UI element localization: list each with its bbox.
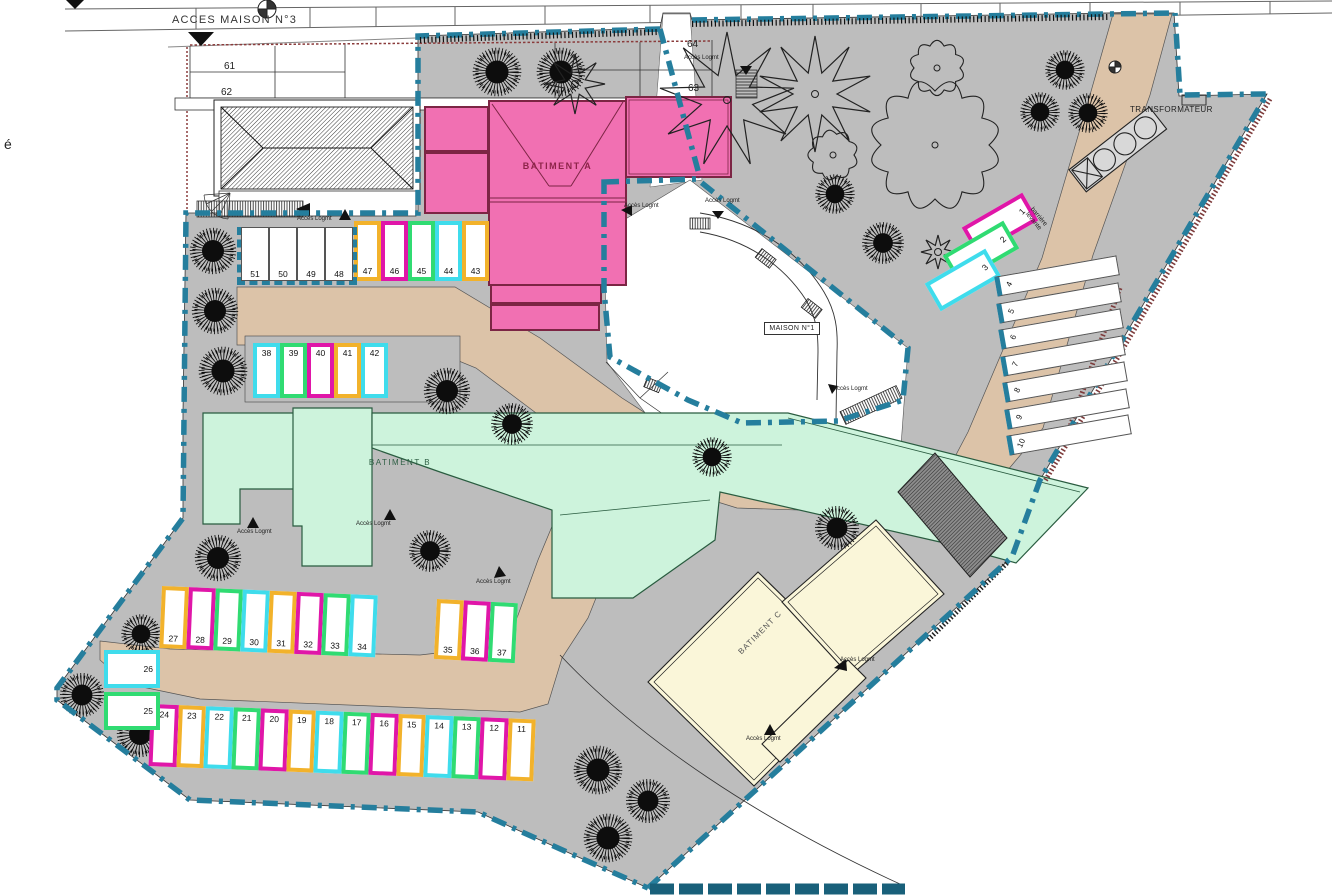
acces-logmt-label: Accès Logmt <box>840 657 875 663</box>
transformateur-label: TRANSFORMATEUR <box>1130 105 1213 114</box>
margin-letter: é <box>4 136 12 152</box>
acces-logmt-label: Accès Logmt <box>705 198 740 204</box>
parking-space-number: 4 <box>1002 276 1017 293</box>
parking-space-20: 20 <box>258 708 288 771</box>
parking-space-number: 19 <box>292 715 312 726</box>
parking-space-29: 29 <box>213 588 243 651</box>
parking-space-number: 38 <box>257 348 276 358</box>
parking-space-48: 48 <box>325 227 353 281</box>
acces-logmt-label: Accès Logmt <box>833 386 868 392</box>
parking-space-46: 46 <box>381 221 408 281</box>
parking-space-number: 11 <box>512 724 532 735</box>
parking-space-number: 3 <box>980 262 990 272</box>
parking-space-50: 50 <box>269 227 297 281</box>
batiment-b-label: BATIMENT B <box>330 458 470 467</box>
parking-space-number: 50 <box>270 269 296 279</box>
parking-space-number: 9 <box>1012 408 1027 425</box>
parking-space-number: 20 <box>264 714 284 725</box>
parking-space-number: 17 <box>347 717 367 728</box>
parking-space-21: 21 <box>231 707 261 770</box>
acces-logmt-label: Accès Logmt <box>624 203 659 209</box>
parking-space-26: 26 <box>104 650 160 688</box>
parking-space-45: 45 <box>408 221 435 281</box>
parking-space-number: 12 <box>484 722 504 733</box>
parking-space-22: 22 <box>203 706 233 769</box>
parking-space-43: 43 <box>462 221 489 281</box>
parking-space-number: 30 <box>244 637 263 648</box>
parking-space-number: 43 <box>466 266 485 276</box>
acces-logmt-label: Accès Logmt <box>476 579 511 585</box>
parking-space-30: 30 <box>240 590 270 653</box>
parking-space-14: 14 <box>423 715 453 778</box>
existing-building <box>197 100 420 219</box>
parking-row-27-34: 2728293031323334 <box>159 586 377 657</box>
parking-space-18: 18 <box>313 711 343 774</box>
parking-space-number: 15 <box>402 719 422 730</box>
parking-space-number: 34 <box>352 641 371 652</box>
parking-space-number: 51 <box>242 269 268 279</box>
plot-number-61: 61 <box>224 61 235 72</box>
parking-space-number: 22 <box>209 711 229 722</box>
parking-space-31: 31 <box>267 591 297 654</box>
parking-space-number: 27 <box>164 633 183 644</box>
parking-space-number: 10 <box>1014 435 1029 452</box>
parking-space-number: 14 <box>429 720 449 731</box>
acces-logmt-label: Accès Logmt <box>297 216 332 222</box>
plot-number-63: 63 <box>688 83 699 94</box>
parking-space-44: 44 <box>435 221 462 281</box>
parking-space-number: 42 <box>365 348 384 358</box>
parking-space-number: 29 <box>217 635 236 646</box>
parking-space-11: 11 <box>506 718 536 781</box>
parking-space-number: 37 <box>492 647 511 658</box>
parking-space-42: 42 <box>361 343 388 398</box>
parking-space-number: 39 <box>284 348 303 358</box>
parking-row-43-47: 4746454443 <box>354 221 489 281</box>
parking-space-51: 51 <box>241 227 269 281</box>
batiment-a-label: BATIMENT A <box>489 161 626 171</box>
acces-logmt-label: Accès Logmt <box>746 736 781 742</box>
parking-space-41: 41 <box>334 343 361 398</box>
parking-space-number: 46 <box>385 266 404 276</box>
acces-logmt-label: Accès Logmt <box>684 55 719 61</box>
parking-space-number: 32 <box>298 639 317 650</box>
parking-space-34: 34 <box>348 594 378 657</box>
parking-space-27: 27 <box>159 586 189 649</box>
parking-space-number: 41 <box>338 348 357 358</box>
parking-space-28: 28 <box>186 587 216 650</box>
parking-row-48-51: 51504948 <box>237 227 357 285</box>
parking-space-number: 18 <box>319 716 339 727</box>
parking-space-number: 6 <box>1006 329 1021 346</box>
parking-space-37: 37 <box>488 602 518 663</box>
parking-space-25: 25 <box>104 692 160 730</box>
parking-space-15: 15 <box>396 714 426 777</box>
parking-row-38-42: 3839404142 <box>253 343 388 398</box>
parking-space-47: 47 <box>354 221 381 281</box>
parking-space-39: 39 <box>280 343 307 398</box>
parking-space-38: 38 <box>253 343 280 398</box>
parking-space-number: 21 <box>237 712 257 723</box>
parking-space-23: 23 <box>176 705 206 768</box>
street-label: ACCES MAISON N°3 <box>172 14 297 26</box>
parking-space-number: 40 <box>311 348 330 358</box>
acces-logmt-label: Accès Logmt <box>356 521 391 527</box>
parking-space-number: 25 <box>144 706 153 716</box>
parking-space-number: 45 <box>412 266 431 276</box>
parking-space-12: 12 <box>478 717 508 780</box>
parking-space-number: 47 <box>358 266 377 276</box>
parking-space-17: 17 <box>341 712 371 775</box>
parking-space-number: 35 <box>438 644 457 655</box>
parking-space-number: 49 <box>298 269 324 279</box>
parking-space-number: 8 <box>1010 382 1025 399</box>
parking-space-number: 2 <box>998 234 1008 244</box>
parking-space-number: 48 <box>326 269 352 279</box>
parking-space-number: 5 <box>1004 302 1019 319</box>
parking-space-33: 33 <box>321 593 351 656</box>
parking-space-number: 28 <box>190 634 209 645</box>
parking-space-49: 49 <box>297 227 325 281</box>
plot-number-62: 62 <box>221 87 232 98</box>
plot-number-64: 64 <box>687 39 698 50</box>
parking-space-number: 33 <box>325 640 344 651</box>
parking-row-35-37: 353637 <box>434 599 518 663</box>
parking-space-number: 36 <box>465 646 484 657</box>
parking-space-13: 13 <box>451 716 481 779</box>
parking-space-19: 19 <box>286 710 316 773</box>
parking-space-number: 44 <box>439 266 458 276</box>
site-plan: ACCES MAISON N°3 é 61 62 63 64 BATIMENT … <box>0 0 1332 896</box>
parking-space-number: 7 <box>1008 355 1023 372</box>
parking-space-number: 23 <box>182 710 202 721</box>
parking-space-32: 32 <box>294 592 324 655</box>
parking-space-number: 13 <box>457 721 477 732</box>
parking-space-number: 16 <box>374 718 394 729</box>
acces-logmt-label: Accès Logmt <box>237 529 272 535</box>
maison-n1-label: MAISON N°1 <box>764 322 820 335</box>
parking-space-35: 35 <box>434 599 464 660</box>
parking-space-number: 31 <box>271 638 290 649</box>
parking-space-40: 40 <box>307 343 334 398</box>
parking-space-number: 26 <box>144 664 153 674</box>
parking-space-36: 36 <box>461 600 491 661</box>
parking-space-16: 16 <box>368 713 398 776</box>
